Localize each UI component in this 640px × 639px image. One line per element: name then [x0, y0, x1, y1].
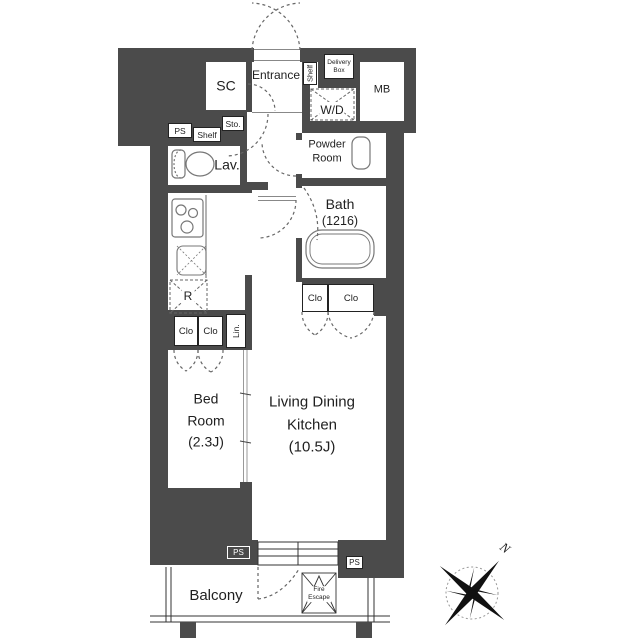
- shelf-side-box: Shelf: [303, 62, 317, 85]
- bath-text-2: (1216): [322, 213, 358, 229]
- fire-escape-text-2: Escape: [308, 594, 330, 602]
- sc-text: SC: [216, 78, 235, 94]
- fire-escape-text-1: Fire: [308, 586, 330, 594]
- compass-north-label: N: [496, 538, 514, 557]
- entrance-jamb-line: [254, 49, 300, 50]
- sliding-partition: [240, 350, 251, 482]
- powder-door-arc: [262, 142, 296, 176]
- bedroom-closet-2: Clo: [198, 316, 223, 346]
- ldk-text-1: Living Dining: [269, 391, 355, 414]
- room-label-balcony: Balcony: [189, 586, 242, 606]
- powder-text-1: Powder: [308, 138, 345, 152]
- wall-partition-step: [240, 482, 252, 492]
- wall-top-left-of-entrance: [206, 48, 254, 62]
- bed-clo-arc-3: [198, 350, 211, 372]
- wall-wd-mb: [356, 62, 360, 121]
- bedroom-closet-1: Clo: [174, 316, 198, 346]
- wall-lav-right: [240, 146, 247, 185]
- room-label-wd: W/D: [319, 102, 344, 118]
- room-label-sc: SC: [216, 77, 235, 96]
- north-text: N: [497, 539, 513, 556]
- bed-clo-arc-2: [186, 350, 198, 371]
- clo-label-4: Clo: [344, 293, 358, 304]
- kitchen-sink-icon: [177, 195, 206, 278]
- balcony-window: [258, 542, 338, 565]
- clo-arc-1: [302, 312, 315, 335]
- entrance-outer-arc-right: [252, 3, 300, 50]
- clo-arc-4: [351, 312, 374, 338]
- ps-bottom-right-box: PS: [346, 556, 363, 569]
- wall-powder-bath-divider: [302, 178, 386, 186]
- bath-text-1: Bath: [322, 195, 358, 213]
- bath-door-arc: [304, 188, 318, 240]
- wall-bottom-seg: [252, 540, 258, 565]
- hall-door-line1: [258, 196, 296, 197]
- genkan-step-line: [252, 112, 302, 113]
- room-label-bath: Bath (1216): [322, 195, 358, 229]
- delivery-box: Delivery Box: [324, 54, 354, 79]
- wall-hall-bar: [245, 182, 268, 190]
- clo-arc-2: [315, 312, 328, 335]
- floor-plan: PS Shelf Sto. Shelf Delivery Box Clo Clo…: [0, 0, 640, 639]
- shelf-top-label: Shelf: [197, 130, 216, 140]
- clo-label-3: Clo: [308, 293, 322, 304]
- ps-bottom-right-label: PS: [349, 558, 360, 567]
- hall-door-line2: [258, 200, 296, 201]
- wd-text: W/D: [320, 103, 343, 117]
- refrigerator-text: R: [184, 289, 193, 303]
- ldk-text-2: Kitchen: [269, 414, 355, 437]
- ps-bottom-left-box: PS: [227, 546, 250, 559]
- linen-box: Lin.: [226, 314, 246, 348]
- room-label-lav: Lav.: [214, 156, 239, 175]
- wall-left: [150, 146, 168, 488]
- balcony-door-arc: [258, 569, 299, 599]
- bedroom-text-3: (2.3J): [187, 432, 224, 454]
- wall-hall-stub: [245, 275, 252, 315]
- mb-text: MB: [374, 84, 391, 96]
- clo-label-1: Clo: [179, 326, 193, 337]
- storage-label: Sto.: [225, 119, 240, 129]
- wall-right-top-strip: [404, 62, 416, 124]
- toilet-icon: [172, 150, 214, 178]
- powder-text-2: Room: [308, 152, 345, 166]
- ps-top-label: PS: [174, 126, 185, 136]
- room-label-ldk: Living Dining Kitchen (10.5J): [269, 391, 355, 459]
- ps-bottom-left-label: PS: [233, 548, 244, 557]
- entrance-sill-line: [254, 60, 300, 61]
- delivery-label-1: Delivery: [327, 59, 350, 66]
- hall-closet-2: Clo: [328, 284, 374, 312]
- room-label-powder: Powder Room: [308, 138, 345, 166]
- shelf-top-box: Shelf: [193, 127, 221, 142]
- balcony-post-left: [180, 622, 196, 638]
- basin-icon: [352, 137, 370, 169]
- delivery-label-2: Box: [333, 67, 344, 74]
- lav-text: Lav.: [214, 157, 239, 173]
- hall-closet-1: Clo: [302, 284, 328, 312]
- stove-icon: [172, 199, 203, 237]
- bed-clo-arc-4: [211, 350, 223, 372]
- clo-label-2: Clo: [203, 326, 217, 337]
- balcony-text: Balcony: [189, 587, 242, 604]
- powder-door-opening: [296, 140, 302, 174]
- entrance-inner-arc: [248, 84, 275, 111]
- entrance-outer-arc-left: [252, 3, 300, 50]
- bath-door-opening: [296, 188, 302, 238]
- clo-arc-3: [328, 312, 351, 338]
- bed-clo-arc-1: [174, 350, 186, 371]
- ps-top-box: PS: [168, 123, 192, 138]
- compass-rose: [440, 561, 504, 625]
- bedroom-text-2: Room: [187, 410, 224, 432]
- refrigerator-label: R: [182, 288, 195, 304]
- ldk-door-arc: [258, 200, 296, 238]
- wall-clo-right: [374, 278, 386, 316]
- ldk-text-3: (10.5J): [269, 436, 355, 459]
- linen-label: Lin.: [231, 324, 241, 338]
- fire-escape-label: Fire Escape: [307, 586, 331, 602]
- room-label-mb: MB: [374, 83, 391, 98]
- bathtub-icon: [306, 230, 374, 268]
- shelf-side-label: Shelf: [306, 65, 315, 82]
- entrance-text: Entrance: [252, 68, 300, 82]
- wall-band-under-mb: [302, 121, 416, 133]
- room-label-entrance: Entrance: [252, 67, 300, 83]
- room-label-bedroom: Bed Room (2.3J): [187, 388, 224, 453]
- balcony-post-right: [356, 622, 372, 638]
- bedroom-text-1: Bed: [187, 388, 224, 410]
- fixtures-overlay: [0, 0, 640, 639]
- wall-right: [386, 133, 404, 565]
- wall-lav-bottom: [168, 185, 252, 193]
- storage-box: Sto.: [222, 116, 244, 131]
